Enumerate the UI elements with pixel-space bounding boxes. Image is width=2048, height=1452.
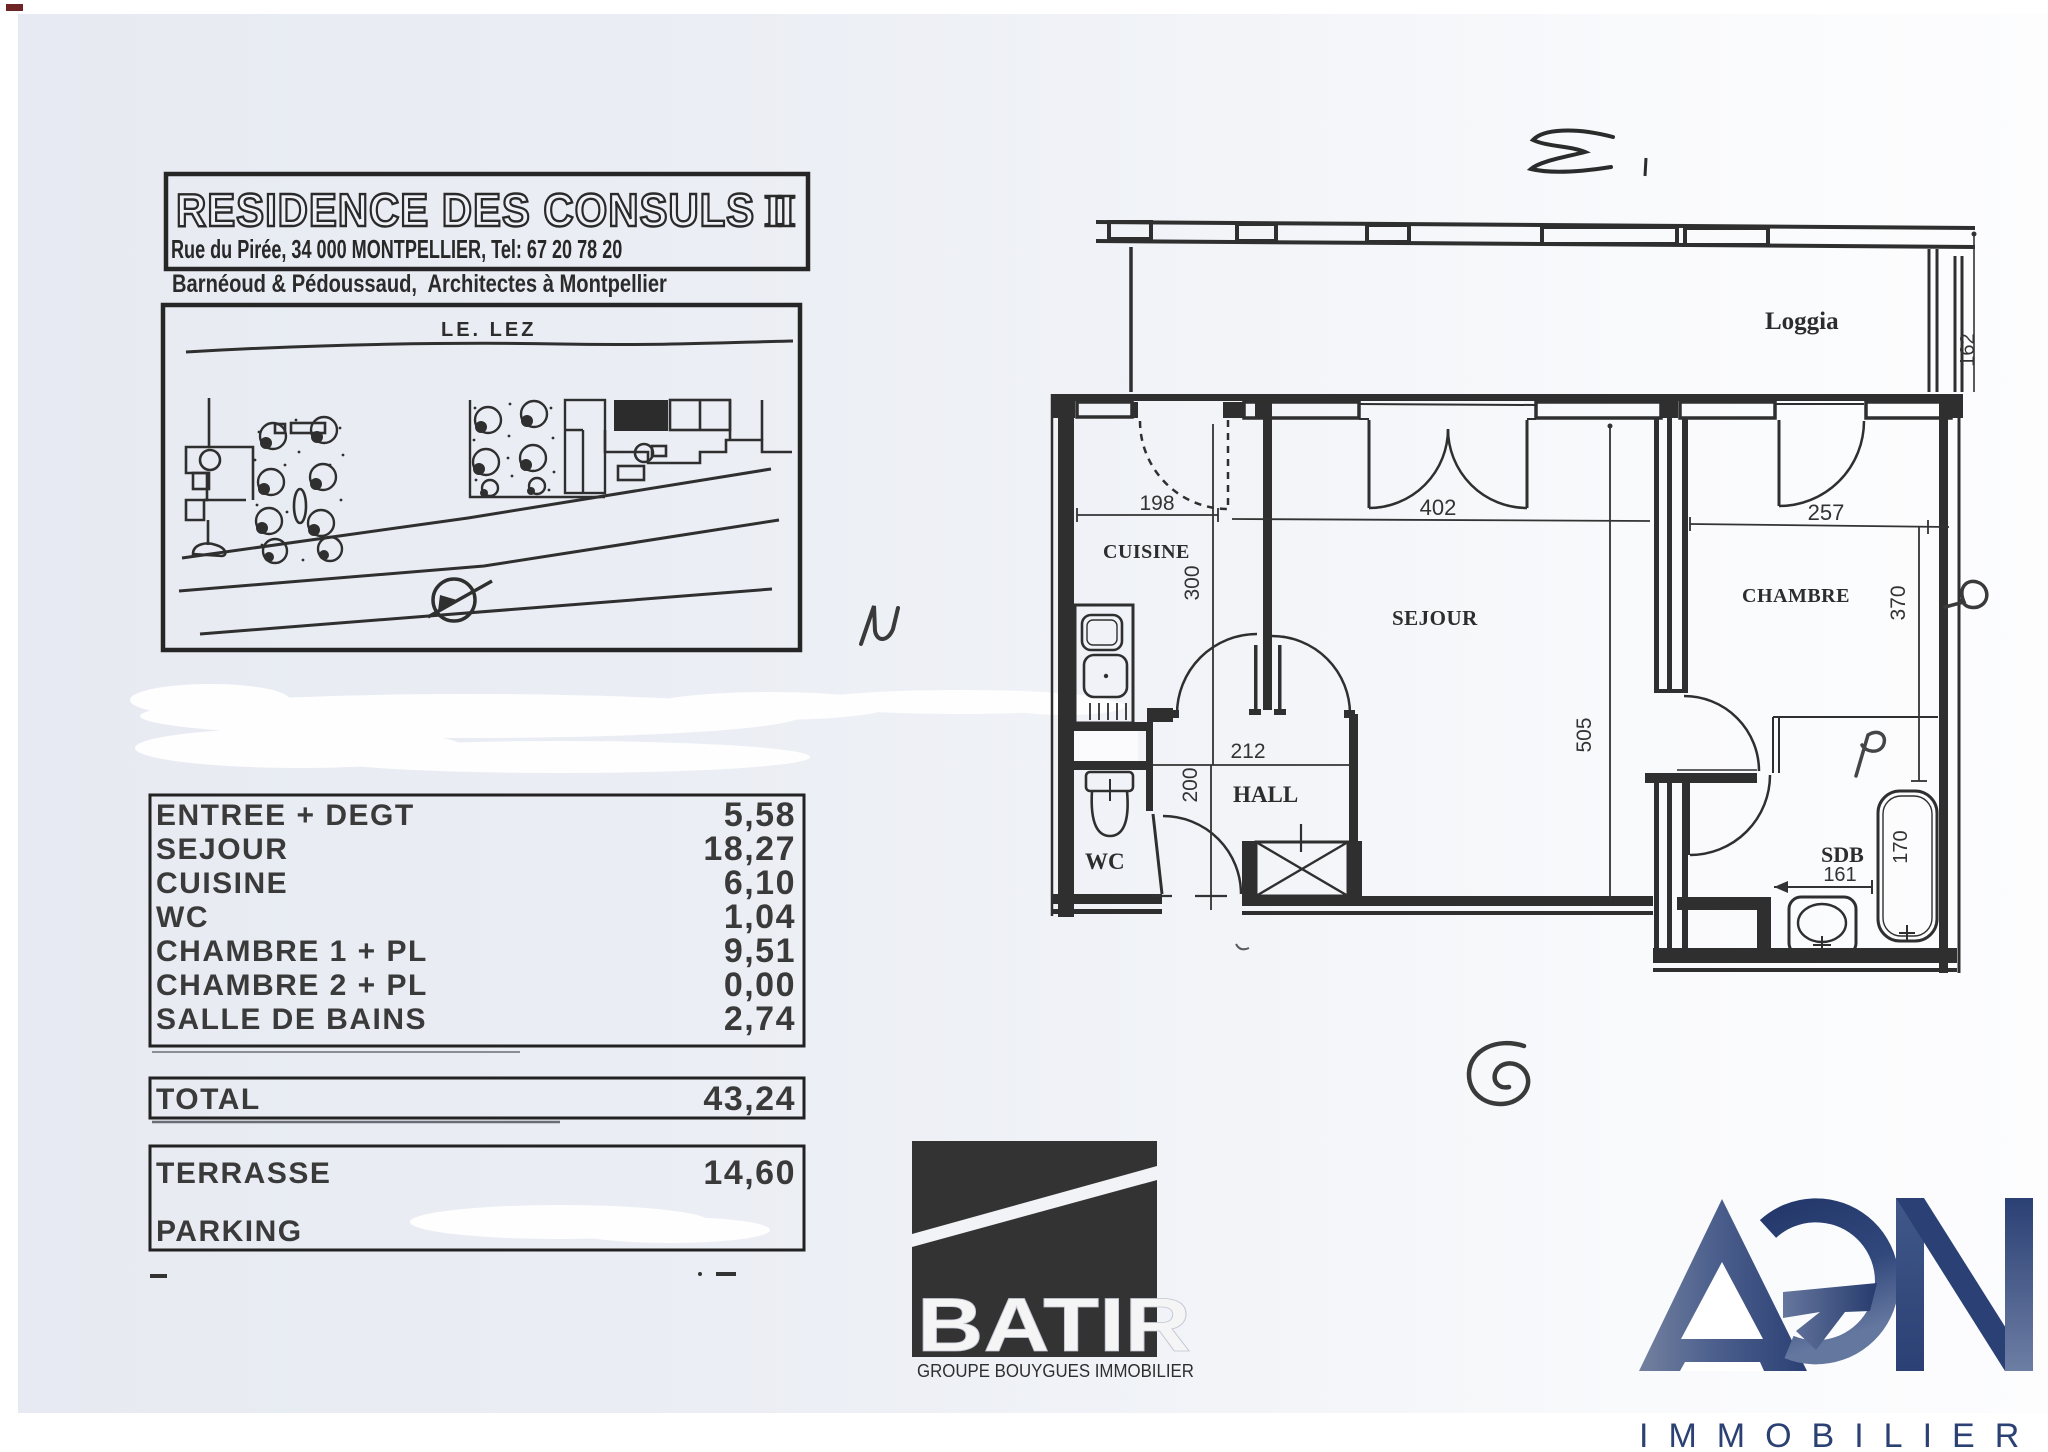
svg-text:402: 402 — [1420, 495, 1457, 520]
svg-text:505: 505 — [1573, 717, 1596, 752]
svg-text:Barnéoud & Pédoussaud, Archit: Barnéoud & Pédoussaud, Architectes à Mon… — [172, 269, 667, 298]
svg-text:TERRASSE: TERRASSE — [156, 1157, 331, 1190]
svg-text:212: 212 — [1230, 740, 1265, 763]
svg-text:SEJOUR: SEJOUR — [156, 833, 288, 866]
svg-text:SALLE DE BAINS: SALLE DE BAINS — [156, 1003, 427, 1036]
svg-text:43,24: 43,24 — [703, 1080, 796, 1118]
svg-text:257: 257 — [1808, 500, 1845, 525]
svg-text:CHAMBRE 2 + PL: CHAMBRE 2 + PL — [156, 969, 428, 1002]
svg-text:9,51: 9,51 — [724, 932, 796, 970]
svg-text:TOTAL: TOTAL — [156, 1083, 261, 1116]
svg-text:HALL: HALL — [1233, 782, 1298, 807]
svg-text:370: 370 — [1887, 585, 1910, 620]
svg-text:WC: WC — [1085, 849, 1125, 874]
svg-text:161: 161 — [1823, 864, 1856, 886]
svg-text:300: 300 — [1181, 565, 1204, 600]
svg-text:LE. LEZ: LE. LEZ — [441, 319, 536, 341]
svg-text:14,60: 14,60 — [703, 1154, 796, 1192]
svg-text:CUISINE: CUISINE — [1103, 541, 1190, 563]
svg-text:198: 198 — [1139, 492, 1174, 515]
svg-text:Rue du Pirée, 34 000 MONTPELLI: Rue du Pirée, 34 000 MONTPELLIER, Tel: 6… — [171, 235, 622, 264]
svg-text:GROUPE BOUYGUES IMMOBILIER: GROUPE BOUYGUES IMMOBILIER — [917, 1360, 1194, 1381]
svg-text:ENTREE + DEGT: ENTREE + DEGT — [156, 799, 415, 832]
svg-text:18,27: 18,27 — [703, 830, 796, 868]
svg-text:200: 200 — [1179, 767, 1202, 802]
svg-text:170: 170 — [1890, 830, 1912, 863]
svg-text:6,10: 6,10 — [724, 864, 796, 902]
svg-text:II: II — [764, 185, 795, 236]
svg-text:BATIR: BATIR — [917, 1283, 1191, 1368]
svg-text:PARKING: PARKING — [156, 1215, 303, 1248]
svg-text:5,58: 5,58 — [724, 796, 796, 834]
svg-text:SEJOUR: SEJOUR — [1392, 606, 1478, 630]
svg-text:RESIDENCE DES CONSULS: RESIDENCE DES CONSULS — [176, 185, 755, 236]
svg-text:IMMOBILIER: IMMOBILIER — [1639, 1417, 2039, 1452]
svg-text:CHAMBRE: CHAMBRE — [1742, 585, 1850, 607]
svg-text:162: 162 — [1957, 333, 1979, 366]
svg-text:CUISINE: CUISINE — [156, 867, 288, 900]
svg-text:WC: WC — [156, 901, 209, 934]
svg-text:1,04: 1,04 — [724, 898, 796, 936]
svg-text:2,74: 2,74 — [724, 1000, 796, 1038]
svg-text:CHAMBRE 1 + PL: CHAMBRE 1 + PL — [156, 935, 428, 968]
svg-text:0,00: 0,00 — [724, 966, 796, 1004]
svg-text:Loggia: Loggia — [1765, 308, 1839, 335]
